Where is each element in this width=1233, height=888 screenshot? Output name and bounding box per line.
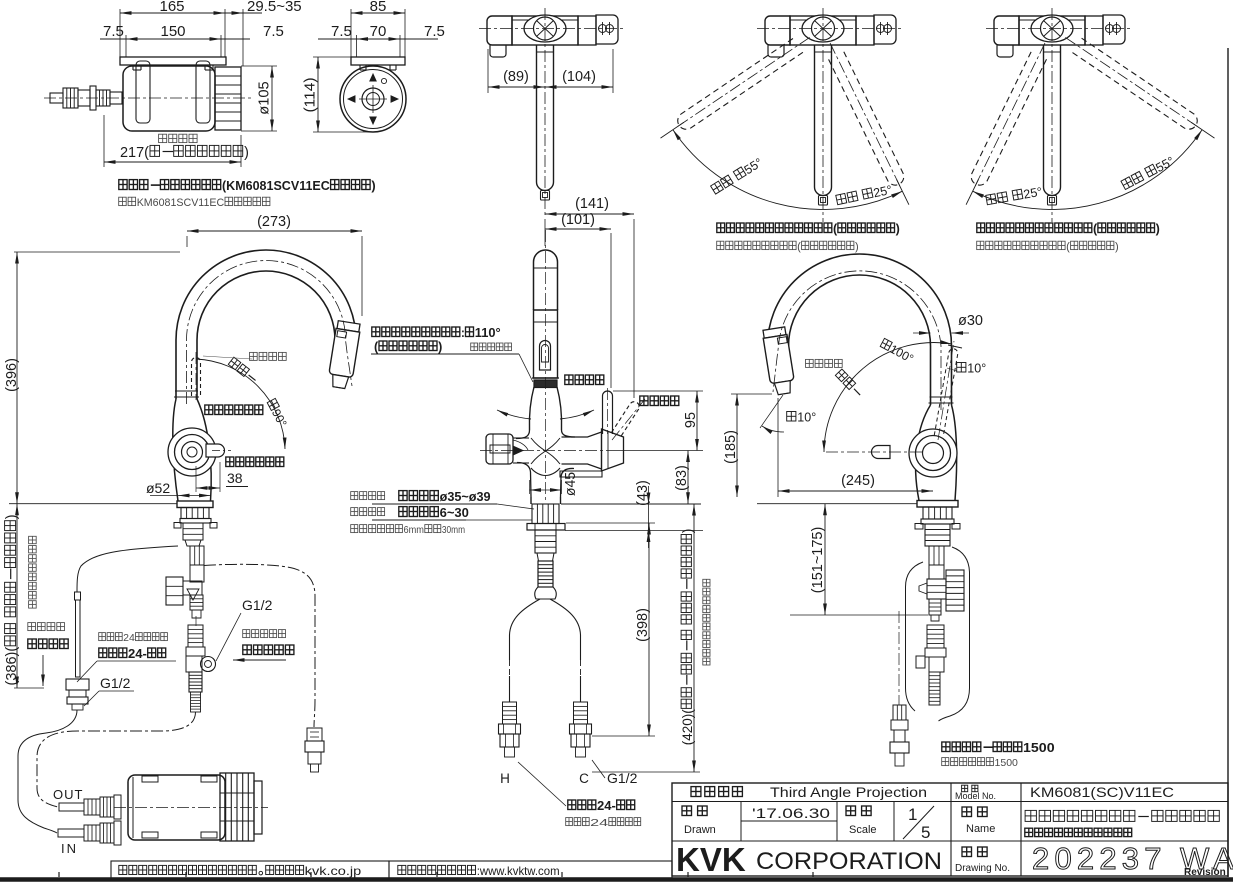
svg-text:(: (	[797, 241, 801, 253]
svg-text:(83): (83)	[674, 465, 690, 491]
svg-text:(43): (43)	[635, 480, 651, 506]
svg-text:(386)(: (386)(	[4, 647, 20, 686]
svg-text:7.5: 7.5	[331, 23, 352, 40]
svg-text:C: C	[579, 771, 589, 786]
svg-text:(141): (141)	[575, 196, 609, 212]
svg-text::www.kvktw.com: :www.kvktw.com	[477, 864, 560, 878]
svg-text:(: (	[1066, 241, 1070, 253]
svg-text:ø35~ø39: ø35~ø39	[440, 489, 491, 504]
svg-text:7.5: 7.5	[103, 23, 124, 40]
svg-text::: :	[461, 326, 465, 340]
svg-text:(420)(: (420)(	[680, 709, 695, 745]
svg-text:KM6081SCV11EC: KM6081SCV11EC	[137, 197, 225, 209]
svg-text:(114): (114)	[301, 77, 318, 112]
svg-text:24: 24	[590, 817, 608, 829]
svg-text:1: 1	[908, 805, 917, 824]
svg-text:): )	[1115, 241, 1119, 253]
svg-text:217(: 217(	[120, 145, 149, 161]
svg-text:6~30: 6~30	[440, 505, 469, 520]
svg-text:70: 70	[370, 23, 387, 40]
svg-text:1500: 1500	[995, 757, 1019, 769]
svg-text:G1/2: G1/2	[100, 675, 131, 691]
svg-text:165: 165	[159, 0, 184, 15]
svg-text:(273): (273)	[257, 214, 291, 230]
svg-text:ø52: ø52	[146, 480, 170, 496]
svg-text:): )	[438, 340, 442, 354]
svg-text:10°: 10°	[967, 362, 986, 376]
svg-text:): )	[855, 241, 859, 253]
svg-text:95: 95	[683, 412, 699, 428]
svg-text:Name: Name	[966, 823, 995, 835]
svg-text:1500: 1500	[1023, 741, 1055, 755]
svg-text:ø105: ø105	[255, 81, 272, 114]
svg-text:7.5: 7.5	[263, 23, 284, 40]
svg-text:(185): (185)	[723, 430, 739, 464]
svg-text:): )	[244, 145, 249, 161]
svg-text:110°: 110°	[475, 326, 501, 340]
svg-text:): )	[680, 529, 695, 534]
svg-text:): )	[1156, 222, 1160, 236]
svg-text:G1/2: G1/2	[607, 770, 638, 786]
svg-text:): )	[371, 178, 375, 193]
svg-text:KM6081(SC)V11EC: KM6081(SC)V11EC	[1030, 784, 1174, 800]
svg-text:ø30: ø30	[958, 313, 983, 329]
svg-text:Model No.: Model No.	[955, 791, 996, 801]
svg-text:6mm: 6mm	[404, 524, 425, 536]
svg-text:7.5: 7.5	[424, 23, 445, 40]
svg-text:10°: 10°	[797, 411, 816, 425]
svg-text:Drawn: Drawn	[684, 824, 716, 836]
svg-text:ø45: ø45	[563, 472, 579, 496]
svg-text:IN: IN	[61, 841, 78, 856]
svg-text:38: 38	[227, 470, 243, 486]
svg-text:KVK: KVK	[676, 841, 746, 878]
svg-text:(101): (101)	[561, 212, 595, 228]
svg-text:H: H	[500, 771, 510, 786]
svg-text:24-: 24-	[597, 799, 616, 813]
svg-text:(151~175): (151~175)	[810, 527, 826, 594]
svg-text:Third Angle Projection: Third Angle Projection	[770, 785, 927, 800]
svg-text:202237: 202237	[1032, 841, 1167, 876]
svg-text:(398): (398)	[635, 608, 651, 642]
svg-text:(KM6081SCV11EC: (KM6081SCV11EC	[222, 178, 330, 193]
svg-text:29.5~35: 29.5~35	[247, 0, 302, 15]
svg-text:Scale: Scale	[849, 824, 877, 836]
svg-text:(245): (245)	[841, 473, 875, 489]
svg-text:): )	[4, 514, 20, 519]
svg-text:Revision: Revision	[1184, 867, 1226, 878]
svg-text:24: 24	[123, 632, 135, 644]
svg-text:(104): (104)	[562, 69, 596, 85]
svg-text:30mm: 30mm	[442, 524, 465, 536]
svg-text:85: 85	[370, 0, 387, 15]
svg-text:G1/2: G1/2	[242, 597, 273, 613]
svg-text:Drawing No.: Drawing No.	[955, 863, 1010, 874]
svg-text:150: 150	[160, 23, 185, 40]
svg-text:(396): (396)	[4, 358, 20, 392]
svg-text:): )	[896, 222, 900, 236]
svg-text:'17.06.30: '17.06.30	[752, 805, 830, 821]
svg-text:24-: 24-	[128, 647, 147, 661]
svg-text:5: 5	[921, 823, 930, 842]
svg-text:OUT: OUT	[53, 787, 83, 802]
svg-text:kvk.co.jp: kvk.co.jp	[305, 864, 362, 878]
svg-text:CORPORATION: CORPORATION	[756, 848, 942, 875]
svg-text:(89): (89)	[503, 69, 529, 85]
